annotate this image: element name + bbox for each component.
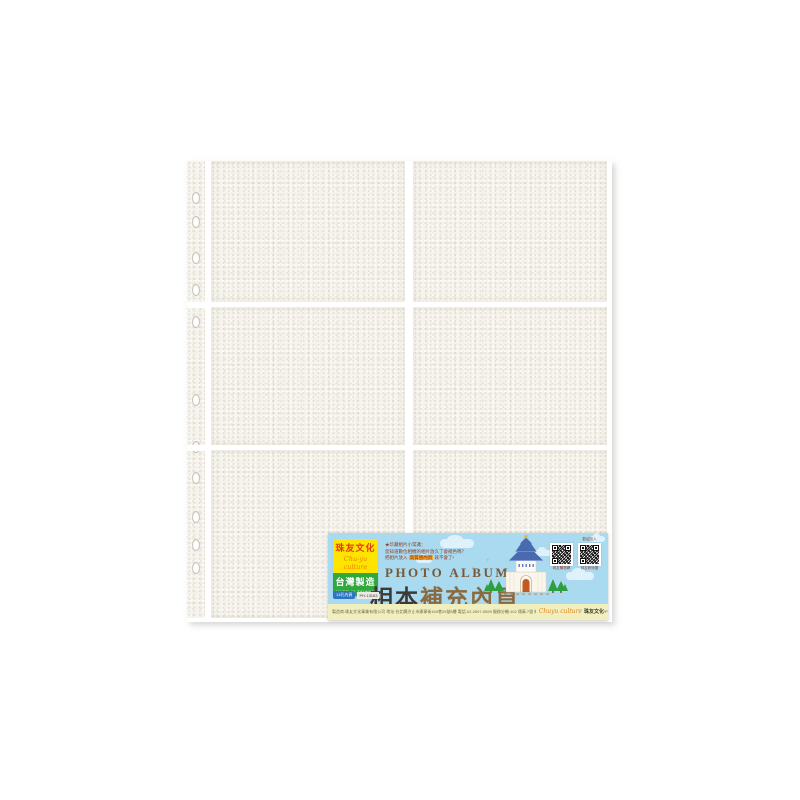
tree-icons-left [484,579,504,593]
binder-hole [192,316,200,328]
binder-hole [192,394,200,406]
strip-seam [187,302,205,308]
qr-caption-shop: 珠友購物網 [550,567,573,571]
photo-pocket [413,307,607,445]
label-footer: 製造商:珠友文化事業有限公司 地址:台北縣汐止市康寧街169巷25號5樓 電話:… [328,604,608,620]
photo-tips: ★珍藏相片小常識： 您知道數位相機的相片放久了會褪色嗎？ 把相片放入 高質感內頁… [385,542,469,562]
qr-caption-fans: 珠友粉絲團 [578,567,601,571]
tips-line-3: 把相片放入 高質感內頁 就不會了! [385,555,469,562]
binder-hole [192,562,200,574]
tips-highlight: 高質感內頁 [409,555,434,560]
binder-hole [192,216,200,228]
brand-script: Chu-yu culture [333,555,378,573]
spec-badge: 13孔內頁 [333,591,355,599]
binding-strip [187,161,205,618]
binder-hole [192,511,200,523]
qr-code-fans [578,543,601,566]
item-code-badge: PH-13163 [357,592,379,599]
photo-pocket [211,307,405,445]
footer-brand: Chuyu culture 珠友文化 [536,604,604,620]
footer-brand-name: 珠友文化 [584,609,604,615]
badge-row: 13孔內頁 PH-13163 [333,591,379,599]
tree-icons-right [548,579,568,593]
binder-hole [192,252,200,264]
brand-name: 珠友文化 [333,539,378,555]
product-label-banner: + + + 珠友文化 Chu-yu culture 台灣製造 MADE IN T… [328,533,608,620]
label-sky-area: + + + 珠友文化 Chu-yu culture 台灣製造 MADE IN T… [328,533,608,604]
qr-caption-fans-top: 歡迎加入 [578,538,601,542]
product-photo-canvas: + + + 珠友文化 Chu-yu culture 台灣製造 MADE IN T… [0,0,800,800]
binder-hole [192,472,200,484]
binder-hole [192,539,200,551]
binder-hole [192,192,200,204]
binder-hole [192,284,200,296]
footer-brand-script: Chuyu culture [539,608,584,615]
photo-pocket [211,161,405,302]
strip-seam [187,445,205,451]
photo-pocket [413,161,607,302]
qr-code-shop [550,543,573,566]
cloud-icon [566,572,594,580]
